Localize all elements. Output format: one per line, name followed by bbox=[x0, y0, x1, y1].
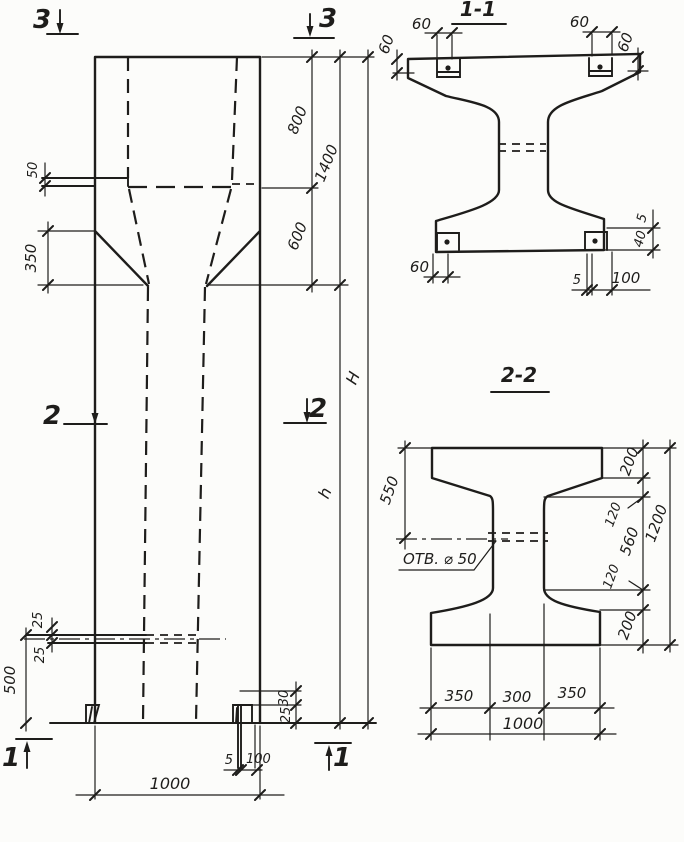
dim-h: h bbox=[314, 485, 335, 502]
section-2-2-title: 2-2 bbox=[501, 363, 537, 387]
web-hole-hidden-lines bbox=[498, 144, 546, 151]
dim-s2-1000: 1000 bbox=[503, 714, 544, 733]
dim-s1-5-right: 5 bbox=[634, 212, 651, 224]
dim-s1-5-bottom: 5 bbox=[573, 273, 581, 288]
technical-drawing: 50 350 800 600 1400 H h 25 25 500 30 25 … bbox=[0, 0, 684, 842]
section-2-2-dimension-ticks bbox=[400, 443, 675, 739]
section-1-1-dimension-ticks bbox=[392, 27, 658, 295]
dim-1000: 1000 bbox=[150, 774, 191, 793]
dim-s2-200-top: 200 bbox=[616, 445, 643, 478]
dim-s2-300: 300 bbox=[503, 688, 532, 706]
elevation-view: 50 350 800 600 1400 H h 25 25 500 30 25 … bbox=[1, 4, 376, 800]
dim-s2-120-top: 120 bbox=[602, 501, 625, 529]
section-mark-2-left: 2 bbox=[43, 401, 61, 431]
dim-s1-60-top-right: 60 bbox=[570, 13, 589, 31]
dim-s1-60-edge-right: 60 bbox=[614, 30, 637, 54]
dim-s2-1200: 1200 bbox=[641, 502, 671, 544]
anchor-bolt-dot bbox=[445, 65, 450, 70]
anchor-bolt-dot bbox=[597, 64, 602, 69]
dim-1400: 1400 bbox=[311, 142, 342, 184]
drawing-sheet: 50 350 800 600 1400 H h 25 25 500 30 25 … bbox=[0, 0, 684, 842]
dim-600: 600 bbox=[284, 219, 311, 252]
dim-800: 800 bbox=[284, 103, 311, 136]
section-2-2-dimension-lines bbox=[398, 440, 678, 740]
dim-anchor-5: 5 bbox=[225, 753, 233, 768]
section-mark-1-right: 1 bbox=[333, 743, 351, 773]
dim-s2-120-bottom: 120 bbox=[600, 563, 623, 591]
anchor-bolt-dot bbox=[592, 238, 597, 243]
dim-s1-60-edge-left: 60 bbox=[375, 32, 398, 56]
dim-s1-60-bottom-left: 60 bbox=[410, 258, 429, 276]
section-1-1-view: 1-1 60 60 60 60 60 5 100 5 40 bbox=[375, 0, 660, 295]
hole-hidden-lines bbox=[488, 533, 548, 541]
dim-ledge-50: 50 bbox=[26, 162, 41, 179]
section-1-1-title: 1-1 bbox=[460, 0, 496, 21]
dim-foot-30: 30 bbox=[277, 690, 292, 707]
dim-slot-25-bottom: 25 bbox=[33, 647, 48, 664]
dim-s2-350-left: 350 bbox=[445, 687, 474, 705]
section-1-1-dimension-lines bbox=[393, 32, 660, 295]
dim-slot-25-top: 25 bbox=[31, 612, 46, 629]
short-dashed-lines bbox=[146, 184, 259, 643]
dim-500: 500 bbox=[1, 666, 19, 695]
section-mark-arrowheads bbox=[24, 23, 333, 756]
section-mark-2-right: 2 bbox=[309, 394, 327, 424]
section-2-2-view: 2-2 ОТВ. ⌀ 50 550 200 120 560 120 200 12… bbox=[376, 363, 678, 740]
dim-H: H bbox=[342, 369, 364, 387]
dim-s2-200-bottom: 200 bbox=[614, 609, 641, 642]
section-mark-3-top-right: 3 bbox=[319, 4, 337, 34]
dim-s2-560: 560 bbox=[616, 525, 643, 558]
dim-anchor-100: 100 bbox=[246, 752, 271, 767]
dim-s1-40-right: 40 bbox=[631, 229, 650, 249]
dim-s2-350-right: 350 bbox=[558, 684, 587, 702]
dim-foot-25: 25 bbox=[279, 707, 294, 724]
anchor-plates bbox=[437, 58, 612, 250]
dim-s2-550: 550 bbox=[376, 474, 403, 507]
dim-taper-350: 350 bbox=[22, 244, 40, 273]
hole-label: ОТВ. ⌀ 50 bbox=[403, 550, 477, 568]
section-2-2-outline bbox=[431, 448, 602, 645]
dim-s1-60-top-left: 60 bbox=[412, 15, 431, 33]
section-1-1-outline bbox=[408, 54, 640, 252]
column-outline bbox=[95, 57, 260, 723]
dim-s1-100-bottom: 100 bbox=[612, 269, 641, 287]
hidden-core-lines bbox=[128, 57, 237, 722]
anchor-bolt-dot bbox=[444, 239, 449, 244]
section-mark-3-top-left: 3 bbox=[33, 5, 51, 35]
section-mark-1-left: 1 bbox=[2, 743, 20, 773]
